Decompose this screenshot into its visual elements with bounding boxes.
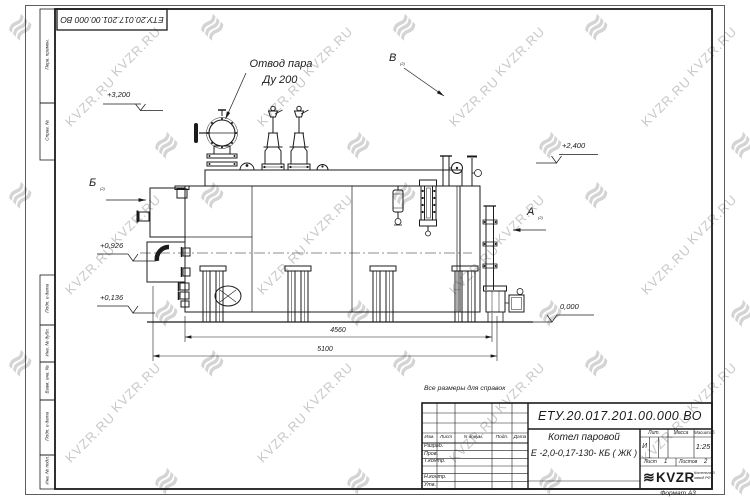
elevation-mark-2400 (536, 155, 598, 164)
view-a-sheet-ref: (2) (538, 216, 543, 220)
boiler-side-view (138, 106, 534, 322)
annotation-lines (97, 68, 598, 361)
format-note: Формат А3 (628, 491, 728, 498)
water-level-gauge (420, 180, 437, 236)
support-legs-1 (200, 266, 226, 322)
elevation-label: +0,926 (100, 242, 123, 250)
tb-sheets-value: 2 (704, 459, 707, 465)
elevation-mark-3200 (103, 104, 163, 111)
elevation-label: +3,200 (107, 91, 130, 99)
elevation-mark-0136 (97, 306, 155, 313)
rear-chamber (460, 186, 480, 312)
view-a-letter: А (527, 207, 534, 218)
boiler-body (185, 186, 460, 312)
support-legs-2 (285, 266, 311, 322)
doc-number: ЕТУ.20.017.201.00.000 ВО (528, 403, 712, 429)
margin-label: Справ. № (45, 95, 50, 165)
view-v-arrow (404, 68, 444, 96)
tb-mass-label: Масса (668, 431, 694, 436)
view-b-sheet-ref: (2) (100, 187, 105, 191)
steam-outlet-label-line1: Отвод пара (245, 59, 317, 70)
elevation-mark-0926 (97, 254, 155, 261)
kvzr-logo-text: KVZR (656, 471, 695, 485)
margin-label: Инв. № подл. (45, 435, 50, 500)
safety-valve-1 (262, 106, 284, 170)
dimension-label: 4560 (308, 327, 368, 334)
tb-row-razrab: Разраб. (424, 444, 443, 449)
view-v-sheet-ref: (2) (400, 62, 405, 66)
tb-scale-label: Масштаб (694, 431, 712, 435)
blowdown-vessel (484, 286, 525, 322)
tb-col-list: Лист (437, 436, 455, 441)
elevation-label: +0,136 (100, 294, 123, 302)
tb-col-izm: Изм. (422, 436, 437, 441)
support-legs-3 (370, 266, 396, 322)
steam-outlet-valve (194, 110, 238, 166)
kvzr-logo-subtext-line2: завод РФ (694, 477, 711, 481)
drum-end-bracket (440, 156, 463, 186)
tb-lit-value: И (640, 443, 649, 450)
steam-outlet-leader (226, 73, 247, 119)
margin-label: Перв. примен. (45, 19, 50, 89)
tb-col-ndokum: N докум. (455, 436, 492, 441)
tb-sheet-value: 1 (664, 459, 667, 465)
tb-sheets-label: Листов (679, 460, 697, 465)
elevation-label: +2,400 (562, 142, 585, 150)
elevation-mark-0000 (531, 315, 594, 322)
drawing-sheet: ≋KVZR.RU≋KVZR.RU≋KVZR.RU≋KVZR.RUKVZR.RU≋… (0, 0, 750, 500)
product-name-line1: Котел паровой (528, 433, 640, 443)
tb-lit-label: Лит. (640, 431, 668, 436)
blowdown-pipe (483, 206, 497, 290)
dimension-label: 5100 (295, 346, 355, 353)
top-stamp-number: ЕТУ.20.017.201.00.000 ВО (57, 9, 167, 30)
steam-drum-strip (205, 170, 462, 186)
front-upper-box (150, 188, 185, 237)
tb-col-data: Дата (512, 436, 528, 441)
tb-sheet-label: Лист (644, 460, 657, 465)
reference-note: Все размеры для справок (424, 386, 505, 393)
tb-scale-value: 1:25 (694, 443, 712, 451)
view-v-letter: В (389, 53, 396, 64)
manhole (215, 286, 241, 306)
burner-flange-arc (157, 247, 169, 261)
product-name-line2: Е -2,0-0,17-130- КБ ( ЖК ) (528, 449, 640, 458)
elevation-label: 0,000 (560, 303, 579, 311)
tb-row-tkontr: Т.контр. (424, 459, 445, 464)
kvzr-logo-icon: ≋ (643, 470, 655, 484)
tb-row-nkontr: Н.контр. (424, 475, 446, 480)
safety-valve-2 (288, 106, 310, 170)
tb-col-podp: Подп. (492, 436, 512, 441)
gauge-cylinder (393, 186, 403, 225)
tb-row-utv: Утв. (424, 483, 436, 488)
feed-valve-stem (467, 157, 482, 187)
view-b-letter: Б (89, 178, 96, 189)
steam-outlet-label-line2: Ду 200 (250, 75, 310, 86)
tb-row-prov: Пров. (424, 452, 438, 457)
support-legs-4 (452, 266, 478, 322)
